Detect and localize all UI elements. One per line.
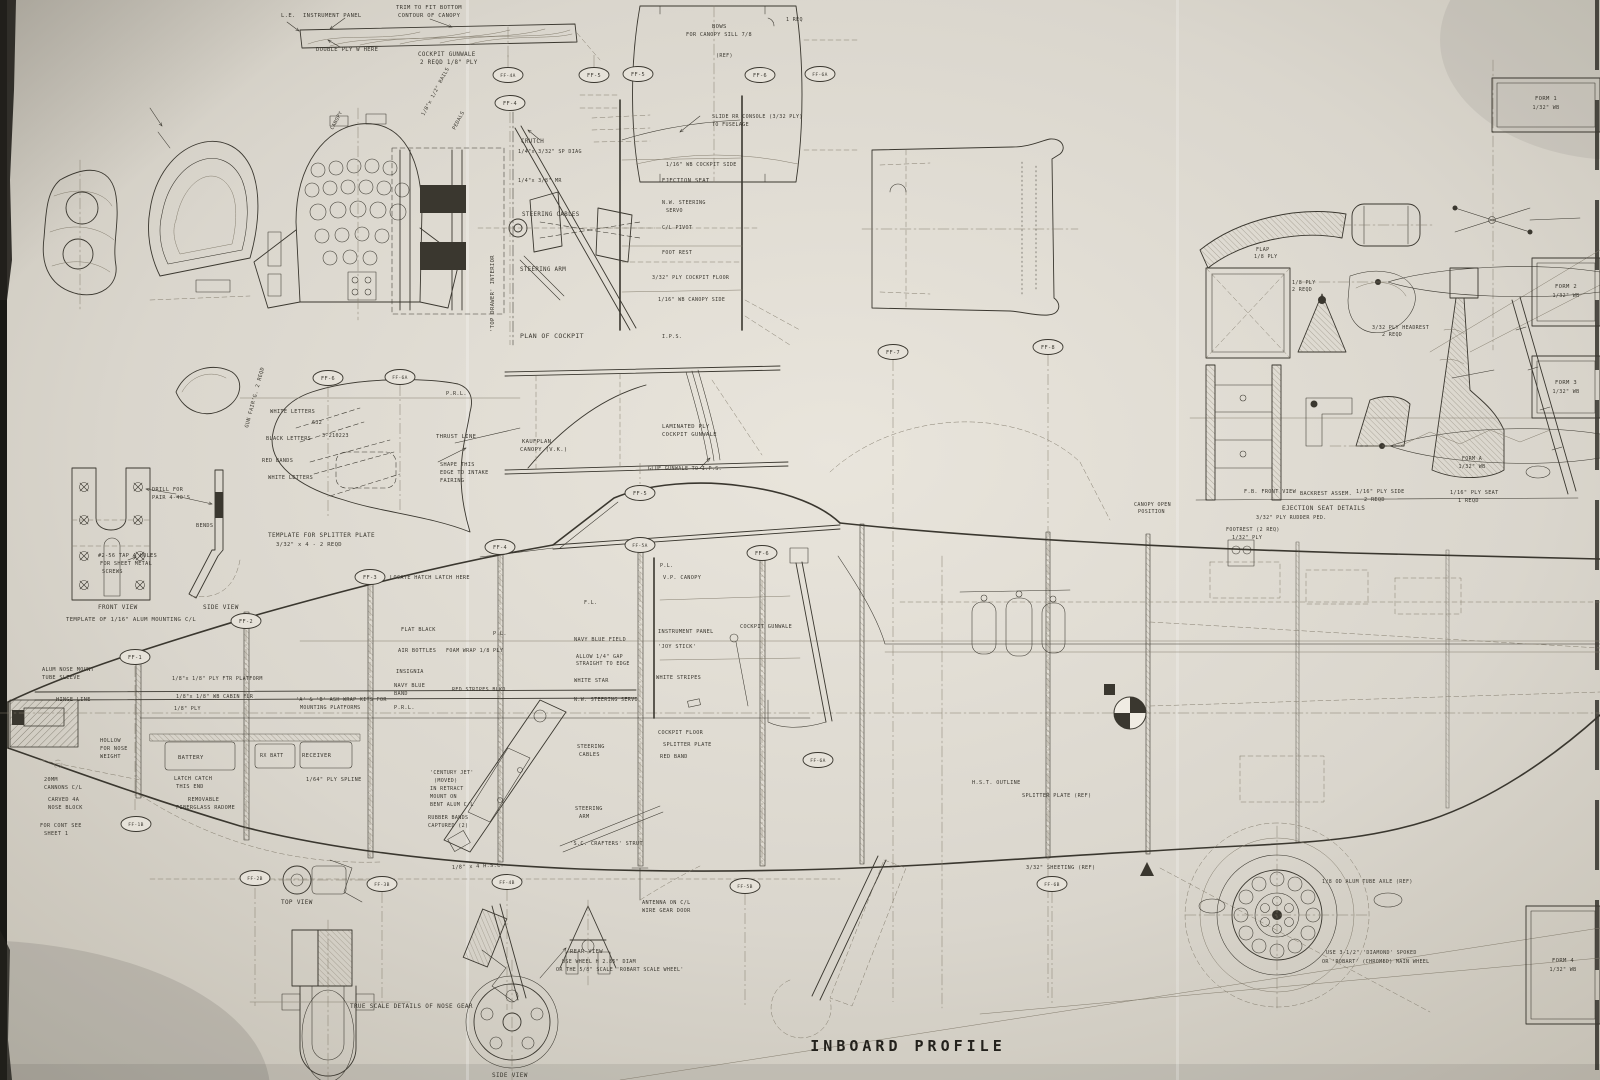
drawing-label: RECEIVER [302,753,332,759]
drawing-label: NAVY BLUE FIELD [574,637,626,643]
drawing-label: SPLITTER PLATE [663,742,712,748]
drawing-label: 3-210223 [322,433,349,439]
drawing-label: 'S.C. CRAFTERS' STRUT [570,841,643,847]
drawing-label: BLACK LETTERS [266,436,311,442]
drawing-label: MOUNTING PLATFORMS [300,705,361,711]
drawing-label: SCREWS [102,569,123,575]
drawing-label: RED BAND [660,754,688,760]
drawing-label: N.W. STEERING SERVO [574,697,638,703]
drawing-label: OR 'ROBART' (CHROMED) MAIN WHEEL [1322,959,1430,965]
drawing-label: FORM 2 [1555,284,1577,290]
drawing-label: 1/8" PLY [174,706,201,712]
drawing-label: INSTRUMENT PANEL [303,13,362,19]
drawing-label: FOR NOSE [100,746,128,752]
drawing-label: TOP VIEW [281,899,313,906]
drawing-label: INSTRUMENT PANEL [658,629,714,635]
drawing-label: COCKPIT GUNWALE [418,52,476,58]
paper-background [0,0,1600,1080]
drawing-label: 1/64" PLY SPLINE [306,777,362,783]
drawing-label: FLAT BLACK [401,627,436,633]
drawing-label: WIRE GEAR DOOR [642,908,691,914]
drawing-label: 632 [312,420,322,426]
svg-text:FF-6: FF-6 [753,73,767,79]
drawing-label: FOR CANOPY SILL 7/8 [686,32,752,38]
drawing-label: USE 3-1/2" 'DIAMOND' SPOKED [1326,950,1417,956]
drawing-label: OR THE 5/8" SCALE 'ROBART SCALE WHEEL' [556,967,684,973]
drawing-label: 1/4"x 3/32" SP DIAG [518,149,582,155]
svg-text:FF-1B: FF-1B [128,822,144,828]
svg-text:FF-4: FF-4 [503,101,517,107]
frame-station-marker: FF-6A [805,67,835,82]
drawing-label: 2 REQD [1364,497,1385,503]
drawing-label: FIBERGLASS RADOME [176,805,235,811]
drawing-label: FOAM WRAP 1/8 PLY [446,648,503,654]
drawing-label: REMOVABLE [188,797,219,803]
drawing-label: EJECTION SEAT [662,178,710,184]
drawing-label: MOUNT ON [430,794,457,800]
drawing-label: 1 REQD [1458,498,1479,504]
drawing-label: SHAPE THIS [440,462,475,468]
drawing-label: 1/32" WB [1553,293,1580,299]
drawing-label: TUBE SLEEVE [42,675,80,681]
frame-station-marker: FF-5 [623,67,653,82]
drawing-label: WHITE LETTERS [268,475,313,481]
drawing-label: 1/8 OD ALUM TUBE AXLE (REF) [1322,879,1413,885]
svg-text:FF-1: FF-1 [128,655,142,661]
drawing-label: TEMPLATE FOR SPLITTER PLATE [268,532,375,539]
drawing-label: TEMPLATE OF 1/16" ALUM MOUNTING C/L [66,617,196,623]
drawing-label: V.P. CANOPY [663,575,702,581]
svg-text:FF-5: FF-5 [587,73,601,79]
drawing-label: FORM A [1462,456,1482,462]
drawing-label: RX BATT [260,753,284,759]
drawing-label: LATCH CATCH [174,776,212,782]
svg-text:FF-5A: FF-5A [632,543,648,549]
drawing-label: 1/32" PLY [1232,535,1262,541]
drawing-label: RED STRIPES BLKD [452,687,506,693]
svg-text:FF-6: FF-6 [321,376,335,382]
drawing-label: AIR BOTTLES [398,648,436,654]
drawing-label: I.P.S. [662,334,682,340]
drawing-label: 1/32" WB [1459,464,1486,470]
drawing-label: THRUST LINE [436,434,476,440]
drawing-label: 1/16" WB CANOPY SIDE [658,297,725,303]
drawing-label: WHITE STRIPES [656,675,701,681]
drawing-label: REAR VIEW [570,949,603,955]
drawing-label: CONTOUR OF CANOPY [398,13,461,19]
drawing-label: COCKPIT FLOOR [658,730,704,736]
drawing-label: 3/32" x 4 - 2 REQD [276,542,342,548]
drawing-label: (REF) [716,53,733,59]
drawing-label: STEERING [577,744,605,750]
drawing-label: SIDE VIEW [492,1072,528,1079]
svg-text:FF-2: FF-2 [239,619,253,625]
drawing-label: FLAP [1256,247,1269,253]
drawing-label: 'CENTURY JET' [430,770,474,776]
drawing-label: H.S.T. OUTLINE [972,780,1021,786]
drawing-label: FRONT VIEW [98,604,138,611]
drawing-label: 1/8"x 1/8" WB CABIN FLR [176,694,254,700]
drawing-label: 1/4"x 3/8" MR [518,178,562,184]
drawing-label: 1/32" WB [1553,389,1580,395]
drawing-label: 3/32" SHEETING (REF) [1026,865,1095,871]
drawing-label: C/L PIVOT [662,225,692,231]
frame-station-marker: FF-6A [803,753,833,768]
drawing-label: FAIRING [440,478,464,484]
drawing-label: THIS END [176,784,204,790]
drawing-label: FORM 1 [1535,96,1557,102]
drawing-label: 1/32" WB [1533,105,1560,111]
drawing-label: KAUFPLAN [522,439,551,445]
drawing-label: 1/16" PLY SIDE [1356,489,1405,495]
drawing-label: 2 REQD [1382,332,1402,338]
drawing-label: 1/32" WB [1550,967,1577,973]
svg-text:FF-4B: FF-4B [499,880,515,886]
drawing-label: STEERING CABLES [522,212,580,218]
svg-text:FF-5B: FF-5B [737,884,753,890]
drawing-label: P.R.L. [394,705,415,711]
drawing-label: 1/8"x 1/8" PLY FTR PLATFORM [172,676,263,682]
drawing-label: PLAN OF COCKPIT [520,332,584,340]
svg-text:FF-6A: FF-6A [392,375,408,381]
drawing-label: FOR SHEET METAL [100,561,152,567]
svg-text:FF-3B: FF-3B [374,882,390,888]
svg-text:FF-6: FF-6 [755,551,769,557]
drawing-label: BENDS [196,523,213,529]
drawing-label: ALUM NOSE MOUNT [42,667,94,673]
inboard-profile-drawing: FF-4AFF-5FF-5FF-6FF-6AFF-4FF-6FF-6AFF-1F… [0,0,1600,1080]
drawing-label: DOUBLE PLY W HERE [316,47,378,53]
drawing-label: FOR CONT SEE [40,823,82,829]
drawing-label: TRUE SCALE DETAILS OF NOSE GEAR [350,1003,473,1010]
drawing-label: RED BANDS [262,458,293,464]
drawing-label: USE WHEEL H 2.85" DIAM [562,959,636,965]
drawing-title: INBOARD PROFILE [810,1037,1005,1055]
drawing-label: WHITE STAR [574,678,609,684]
drawing-label: ALLOW 1/4" GAP [576,654,623,660]
svg-text:FF-3: FF-3 [363,575,377,581]
drawing-label: 'A' & 'B' ASH WRAP KITS FOR [296,697,387,703]
drawing-label: SHEET 1 [44,831,68,837]
drawing-label: WHITE LETTERS [270,409,315,415]
drawing-label: N.W. STEERING [662,200,706,206]
drawing-label: FOOTREST (2 REQ) [1226,527,1280,533]
drawing-label: EJECTION SEAT DETAILS [1282,505,1365,512]
drawing-label: BENT ALUM C/L [430,802,474,808]
drawing-label: DRILL FOR [152,487,184,493]
drawing-label: WEIGHT [100,754,121,760]
drawing-label: STRAIGHT TO EDGE [576,661,630,667]
drawing-label: 3/32" PLY RUDDER PED. [1256,515,1327,521]
drawing-label: CANNONS C/L [44,785,82,791]
drawing-label: L.E. [281,13,296,19]
drawing-label: ARM [579,814,589,820]
drawing-label: FORM 4 [1552,958,1574,964]
drawing-label: CABLES [579,752,600,758]
svg-text:FF-5: FF-5 [631,72,645,78]
svg-text:FF-4A: FF-4A [500,73,516,79]
drawing-label: BAND [394,691,408,697]
drawing-label: RUBBER BANDS [428,815,468,821]
drawing-label: 3/32" PLY COCKPIT FLOOR [652,275,730,281]
svg-text:FF-4: FF-4 [493,545,507,551]
drawing-label: COCKPIT GUNWALE [662,432,717,438]
drawing-label: BATTERY [178,755,204,761]
drawing-label: 'TOP DRAWER' INTERIOR [490,255,496,332]
svg-text:FF-2B: FF-2B [247,876,263,882]
drawing-label: LOCATE HATCH LATCH HERE [390,575,470,581]
drawing-label: POSITION [1138,509,1165,515]
drawing-label: STEERING ARM [520,267,566,273]
svg-text:FF-8: FF-8 [1041,345,1055,351]
svg-text:FF-6B: FF-6B [1044,882,1060,888]
drawing-label: SLIDE RR CONSOLE (3/32 PLY) [712,114,803,120]
drawing-label: COCKPIT GUNWALE [740,624,792,630]
drawing-label: FORM 3 [1555,380,1577,386]
svg-text:FF-5: FF-5 [633,491,647,497]
drawing-label: F.B. FRONT VIEW [1244,489,1297,495]
drawing-label: ANTENNA ON C/L [642,900,691,906]
drawing-label: (MOVED) [434,778,458,784]
drawing-label: 1/8 PLY [1292,280,1316,286]
drawing-label: 20MM [44,777,58,783]
svg-text:FF-6A: FF-6A [812,72,828,78]
drawing-label: #2-56 TAP 4 HOLES [98,553,157,559]
frame-station-marker: FF-6 [745,68,775,83]
drawing-label: SPLITTER PLATE (REF) [1022,793,1091,799]
drawing-label: INSIGNIA [396,669,424,675]
drawing-label: HOLLOW [100,738,121,744]
drawing-label: BACKREST ASSEM. [1300,491,1352,497]
blueprint-sheet: FF-4AFF-5FF-5FF-6FF-6AFF-4FF-6FF-6AFF-1F… [0,0,1600,1080]
balance-point-marker [1104,684,1115,695]
drawing-label: IN RETRACT [430,786,464,792]
svg-text:FF-6A: FF-6A [810,758,826,764]
frame-station-marker: FF-1B [121,817,151,832]
drawing-label: 1 REQ [786,17,803,23]
drawing-label: 2 REQD 1/8" PLY [420,60,478,66]
drawing-label: LAMINATED PLY [662,424,710,430]
drawing-label: CAPTURED (2) [428,823,468,829]
drawing-label: 2 REQD [1292,287,1312,293]
drawing-label: NAVY BLUE [394,683,425,689]
drawing-label: CRUTCH [521,139,544,145]
drawing-label: STEERING [575,806,603,812]
drawing-label: CANOPY (V.K.) [520,447,568,453]
drawing-label: TO FUSELAGE [712,122,749,128]
drawing-label: 3/32 PLY HEADREST [1372,325,1429,331]
drawing-label: SIDE VIEW [203,604,239,611]
svg-text:FF-7: FF-7 [886,350,900,356]
drawing-label: 1/16" WB COCKPIT SIDE [666,162,737,168]
drawing-label: P.L. [493,631,507,637]
drawing-label: 'JOY STICK' [658,644,696,650]
drawing-label: BOWS [712,24,727,30]
drawing-label: 1/16" PLY SEAT [1450,490,1499,496]
cg-symbol [1114,697,1146,729]
drawing-label: HINGE LINE [56,697,91,703]
drawing-label: GLUE GUNWALE TO I.P.S. [648,466,722,472]
drawing-label: FOOT REST [662,250,692,256]
drawing-label: 1/8 PLY [1254,254,1278,260]
drawing-label: NOSE BLOCK [48,805,83,811]
drawing-label: PAIR 4-40'S [152,495,190,501]
drawing-label: P.R.L. [446,391,467,397]
drawing-label: SERVO [666,208,683,214]
drawing-label: P.L. [660,563,673,569]
drawing-label: CANOPY OPEN [1134,502,1171,508]
drawing-label: F.L. [584,600,597,606]
drawing-label: TRIM TO FIT BOTTOM [396,5,462,11]
drawing-label: EDGE TO INTAKE [440,470,489,476]
drawing-label: CARVED 4A [48,797,80,803]
